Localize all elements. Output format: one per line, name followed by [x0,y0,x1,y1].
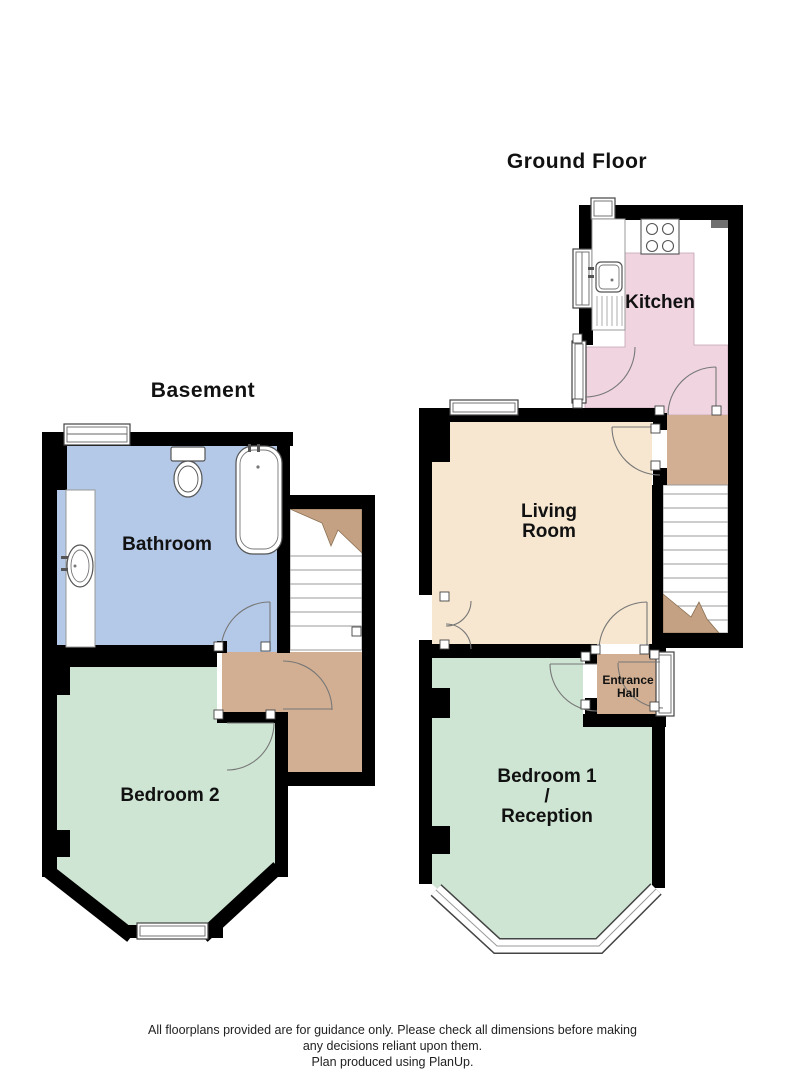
bathtub [236,444,282,554]
kitchen-side-window [573,249,592,308]
landing-floor [667,415,728,485]
kitchen-label: Kitchen [625,293,695,313]
floorplan-canvas [0,0,785,1080]
kitchen-back-door-frame [572,341,586,403]
stove [641,219,679,254]
basement-plan [42,424,375,939]
floorplan-page: Basement Ground Floor Bathroom Bedroom 2… [0,0,785,1080]
kitchen-sink-unit [588,219,625,330]
toilet [171,447,205,497]
basement-window-top [64,424,130,445]
disclaimer-line-3: Plan produced using PlanUp. [0,1054,785,1070]
kitchen-vent [711,220,728,228]
basement-staircase [290,509,362,650]
kitchen-top-window [591,198,615,219]
ground-staircase [663,485,728,633]
bathroom-label: Bathroom [122,535,212,555]
bedroom2-bay-window [137,923,208,939]
ground-floor-title: Ground Floor [507,150,647,174]
living-room-label: Living Room [521,502,577,542]
basement-title: Basement [151,379,255,403]
disclaimer: All floorplans provided are for guidance… [0,1022,785,1070]
entrance-hall-label: Entrance Hall [602,674,653,700]
disclaimer-line-1: All floorplans provided are for guidance… [0,1022,785,1038]
bedroom2-label: Bedroom 2 [120,786,219,806]
bedroom1-label: Bedroom 1 / Reception [497,767,596,827]
living-room-window [450,400,518,415]
disclaimer-line-2: any decisions reliant upon them. [0,1038,785,1054]
bathroom-vanity [61,490,95,647]
